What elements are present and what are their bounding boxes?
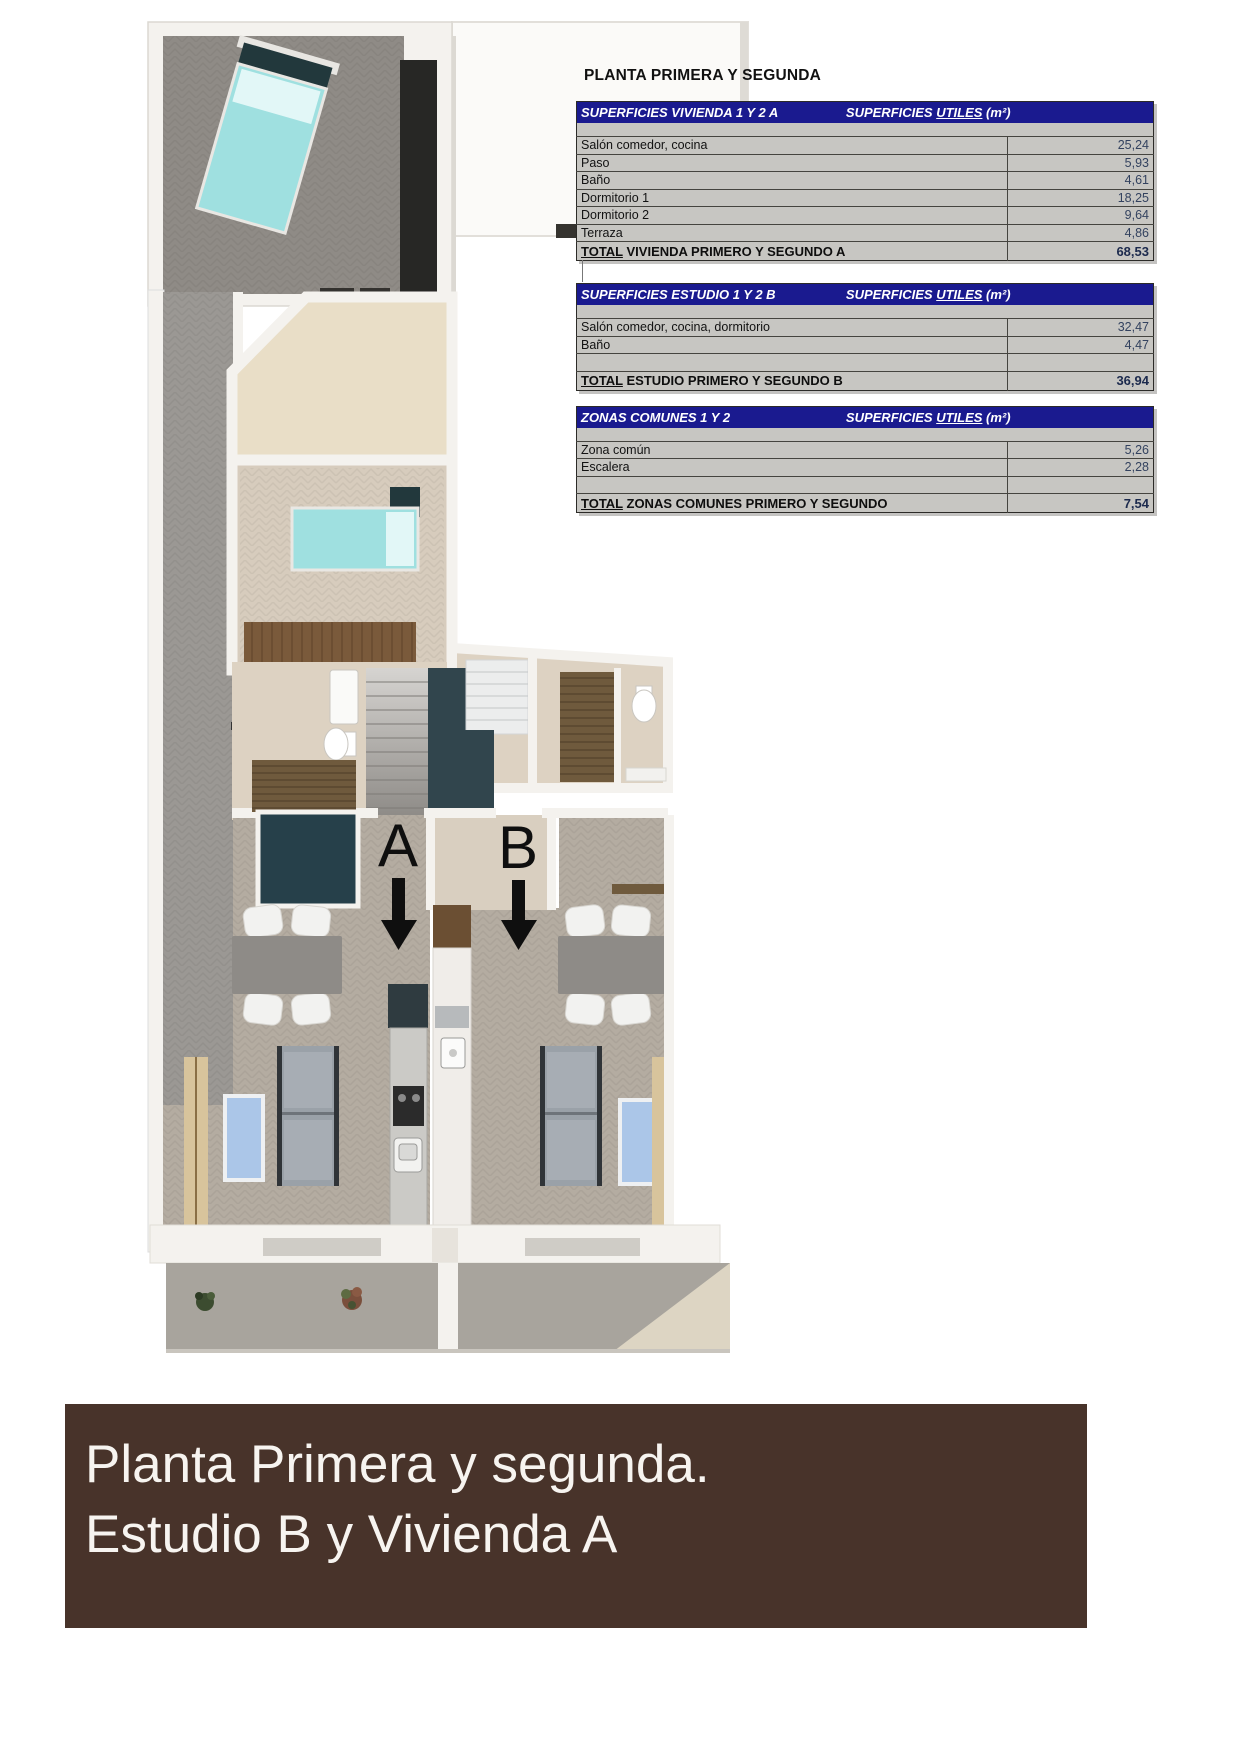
- table-row: Zona común5,26: [577, 441, 1154, 459]
- cooktop-icon: [393, 1086, 424, 1126]
- page-title: PLANTA PRIMERA Y SEGUNDA: [584, 66, 1154, 86]
- kitchen-a: [388, 984, 428, 1225]
- cabinet-a: [184, 1057, 208, 1253]
- bedroom-top: [148, 22, 456, 306]
- balcony: [166, 1263, 730, 1353]
- table-header-left: ZONAS COMUNES 1 Y 2: [577, 406, 842, 428]
- bedroom-mid: [232, 460, 452, 670]
- table-header: SUPERFICIES VIVIENDA 1 Y 2 A SUPERFICIES…: [577, 102, 1154, 124]
- kitchen-island-b: [433, 905, 471, 1225]
- empty-row: [577, 354, 1154, 372]
- shower-icon-left: [252, 760, 356, 812]
- surfaces-panel: PLANTA PRIMERA Y SEGUNDA SUPERFICIES VIV…: [576, 66, 1154, 513]
- table-total-row: TOTAL VIVIENDA PRIMERO Y SEGUNDO A68,53: [577, 242, 1154, 261]
- table-header-left: SUPERFICIES VIVIENDA 1 Y 2 A: [577, 102, 842, 124]
- toilet-icon-a: [324, 728, 356, 760]
- terrace: [232, 297, 452, 460]
- dark-room-block: [258, 812, 358, 906]
- apartment-a-label: A: [378, 812, 418, 879]
- spacer-row: [577, 305, 1154, 319]
- empty-row: [577, 476, 1154, 494]
- dining-set-b: [558, 904, 666, 1026]
- table-header: ZONAS COMUNES 1 Y 2 SUPERFICIES UTILES (…: [577, 406, 1154, 428]
- spacer-row: [577, 123, 1154, 137]
- spacer-row: [577, 428, 1154, 442]
- table-header-right: SUPERFICIES UTILES (m²): [842, 406, 1154, 428]
- table-row: Paso5,93: [577, 154, 1154, 172]
- sofa-a: [277, 1046, 339, 1186]
- shower-icon: [560, 672, 614, 782]
- rug-a: [225, 1096, 263, 1180]
- table-row: Escalera2,28: [577, 459, 1154, 477]
- table-row: Dormitorio 29,64: [577, 207, 1154, 225]
- table-row: Dormitorio 118,25: [577, 189, 1154, 207]
- toilet-icon-b: [632, 686, 656, 722]
- table-zonas-comunes: ZONAS COMUNES 1 Y 2 SUPERFICIES UTILES (…: [576, 406, 1154, 514]
- cell-tick: [582, 260, 583, 282]
- title-banner: Planta Primera y segunda. Estudio B y Vi…: [65, 1404, 1087, 1628]
- table-total-row: TOTAL ESTUDIO PRIMERO Y SEGUNDO B36,94: [577, 371, 1154, 390]
- wardrobe-icon: [244, 622, 416, 662]
- table-estudio-b: SUPERFICIES ESTUDIO 1 Y 2 B SUPERFICIES …: [576, 283, 1154, 391]
- table-row: Salón comedor, cocina25,24: [577, 137, 1154, 155]
- table-row: Salón comedor, cocina, dormitorio32,47: [577, 319, 1154, 337]
- banner-line-1: Planta Primera y segunda.: [65, 1404, 1087, 1500]
- table-row: Terraza4,86: [577, 224, 1154, 242]
- table-vivienda-a: SUPERFICIES VIVIENDA 1 Y 2 A SUPERFICIES…: [576, 101, 1154, 261]
- bottom-wall: [150, 1225, 720, 1263]
- radiator-b: [612, 884, 664, 894]
- table-header: SUPERFICIES ESTUDIO 1 Y 2 B SUPERFICIES …: [577, 284, 1154, 306]
- sofa-b: [540, 1046, 602, 1186]
- table-row: Baño4,47: [577, 336, 1154, 354]
- sink-icon: [394, 1138, 422, 1172]
- apartment-b-label: B: [498, 814, 538, 881]
- banner-line-2: Estudio B y Vivienda A: [65, 1500, 1087, 1570]
- table-header-right: SUPERFICIES UTILES (m²): [842, 102, 1154, 124]
- table-header-left: SUPERFICIES ESTUDIO 1 Y 2 B: [577, 284, 842, 306]
- table-total-row: TOTAL ZONAS COMUNES PRIMERO Y SEGUNDO7,5…: [577, 494, 1154, 513]
- table-header-right: SUPERFICIES UTILES (m²): [842, 284, 1154, 306]
- table-row: Baño4,61: [577, 172, 1154, 190]
